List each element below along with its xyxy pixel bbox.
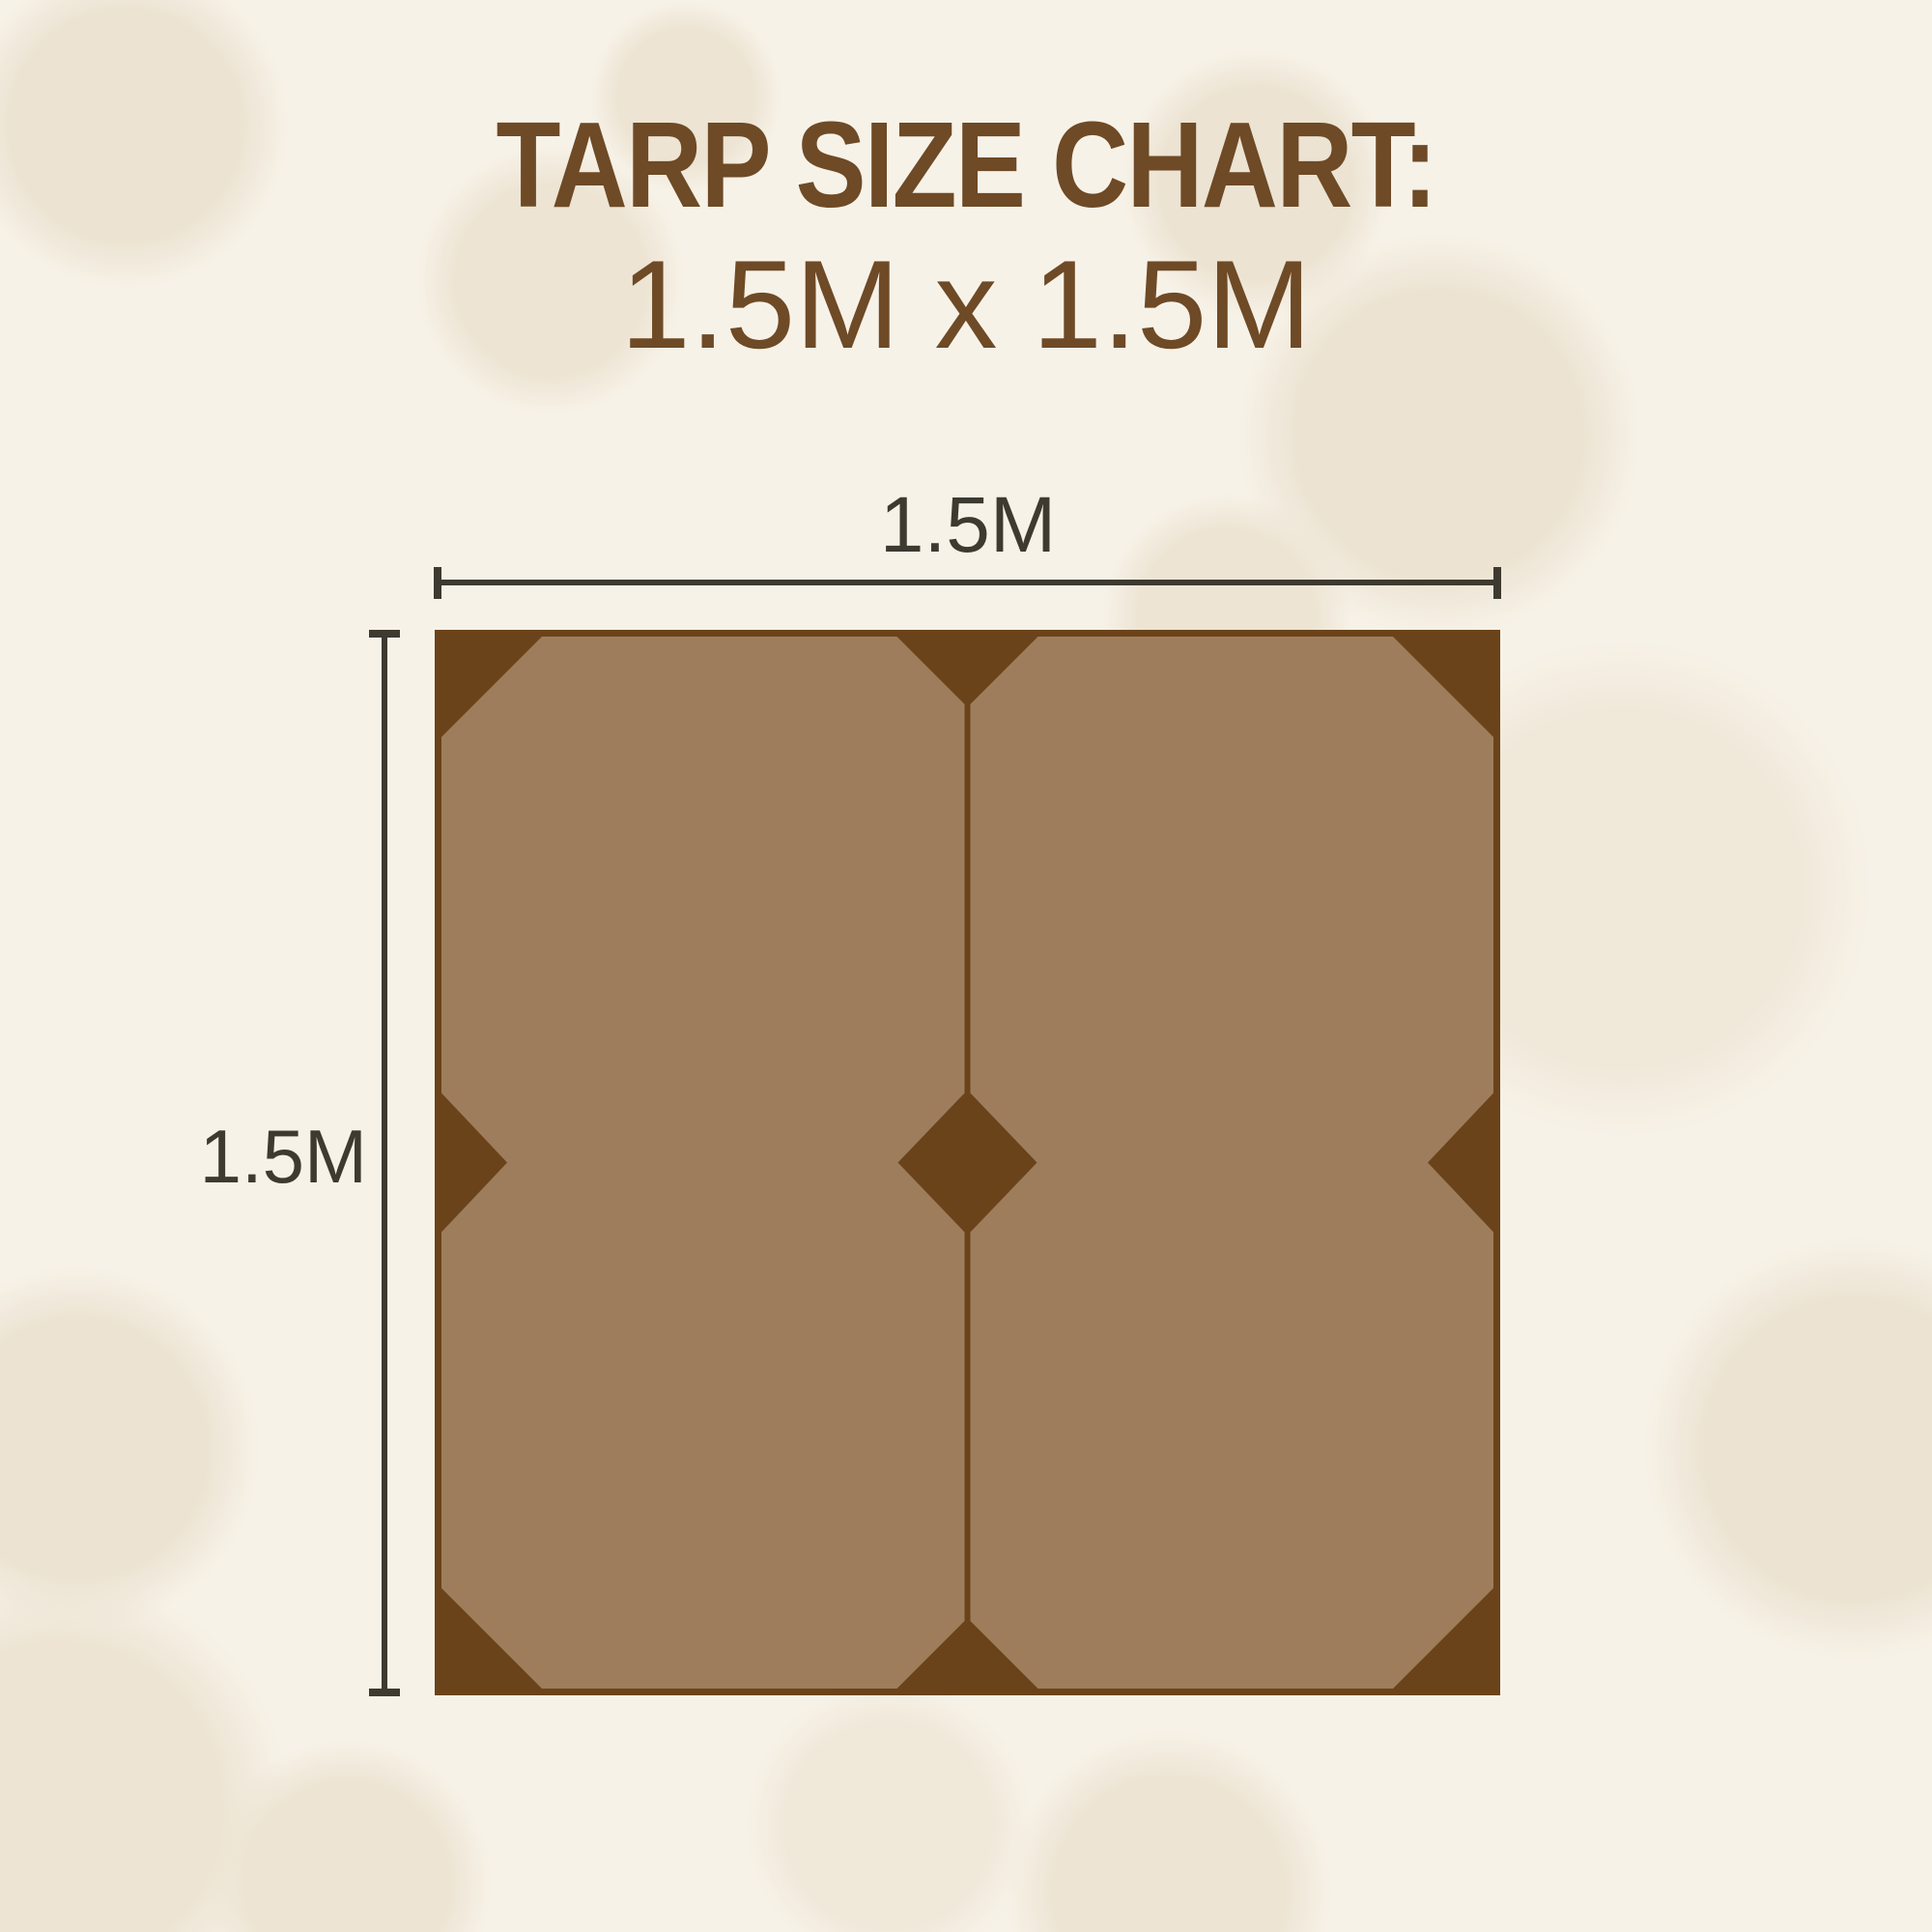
- tarp-panel-right: [971, 637, 1494, 1689]
- height-dimension-label: 1.5M: [145, 1119, 367, 1194]
- page-title: TARP SIZE CHART:: [126, 104, 1806, 226]
- tarp-size-infographic: TARP SIZE CHART: 1.5M x 1.5M 1.5M 1.5M: [0, 0, 1932, 1932]
- tarp-panel-left: [441, 637, 965, 1689]
- height-dimension-line: [369, 634, 400, 1692]
- page-subtitle: 1.5M x 1.5M: [0, 241, 1932, 367]
- tarp-diagram: [435, 630, 1500, 1695]
- width-dimension-label: 1.5M: [871, 486, 1065, 565]
- width-dimension-line: [438, 567, 1497, 599]
